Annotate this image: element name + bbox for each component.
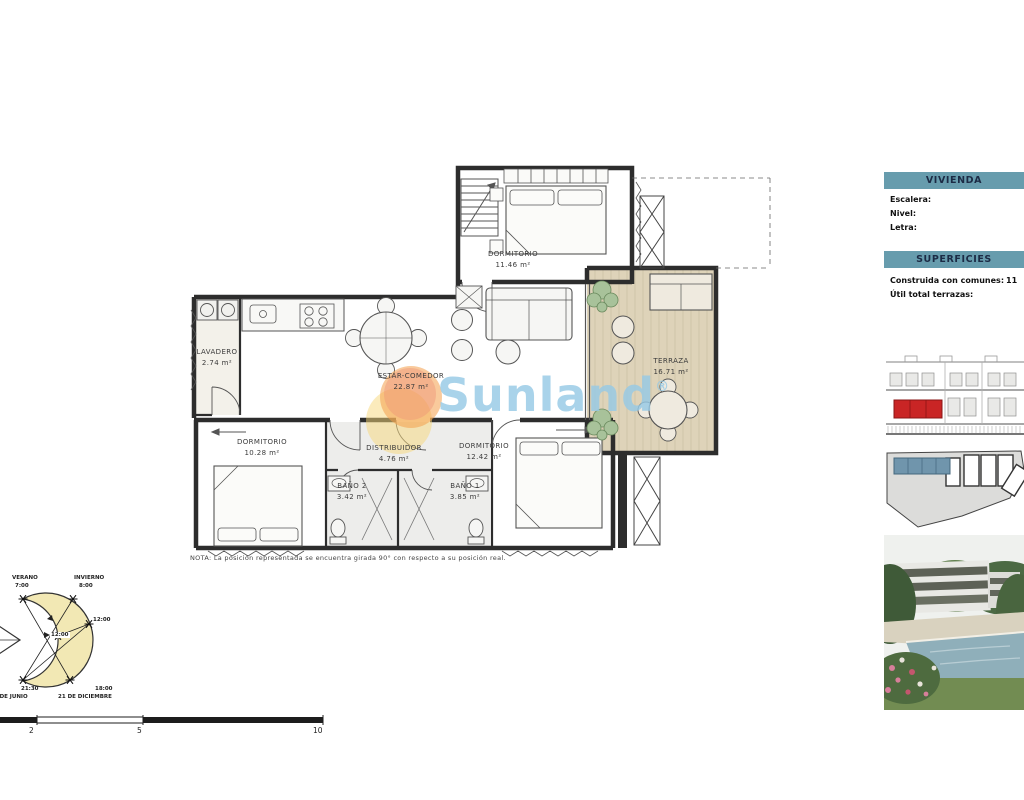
wall-poche	[618, 453, 627, 548]
vivienda-header-label: VIVIENDA	[926, 175, 982, 186]
wardrobe	[504, 169, 608, 183]
room-label-dormitorio-left: DORMITORIO10.28 m²	[237, 437, 287, 458]
scale-tick-10: 10	[313, 726, 323, 735]
scale-tick-5: 5	[137, 726, 142, 735]
siteplan-thumbnail	[887, 451, 1024, 527]
stairs	[461, 179, 498, 236]
vivienda-header-bar: VIVIENDA	[884, 172, 1024, 189]
sun-sunset-summer: 21:30	[21, 686, 39, 692]
sun-date-summer: 21 DE JUNIO	[0, 694, 28, 700]
sun-verano-label: VERANO	[12, 575, 38, 581]
projection-dashes	[632, 178, 770, 268]
superficies-header-bar: SUPERFICIES	[884, 251, 1024, 268]
floorplan-sheet: Sunland® DORMITORIO11.46 m² LAVADERO2.74…	[0, 0, 1024, 800]
north-arrow	[0, 624, 20, 656]
room-label-estar-comedor: ESTAR-COMEDOR22.87 m²	[378, 371, 444, 392]
sun-sunset-winter: 18:00	[95, 686, 113, 692]
superficie-construida-label: Construida con comunes:	[890, 276, 1004, 285]
scale-tick-2: 2	[29, 726, 34, 735]
room-label-dormitorio-top: DORMITORIO11.46 m²	[488, 249, 538, 270]
highlighted-unit-blue	[894, 458, 950, 474]
sun-invierno-time: 8:00	[79, 583, 93, 589]
kitchen	[242, 299, 344, 331]
superficie-terrazas-label: Útil total terrazas:	[890, 290, 973, 299]
sun-date-winter: 21 DE DICIEMBRE	[58, 694, 112, 700]
sofa	[452, 286, 573, 364]
room-label-bano2: BAÑO 23.42 m²	[337, 481, 367, 502]
bed-top	[490, 186, 606, 254]
bed-bottom-left	[214, 466, 302, 546]
superficie-construida-value: 11	[1006, 276, 1017, 285]
rotation-note: NOTA: La posición representada se encuen…	[190, 554, 506, 562]
sun-invierno-label: INVIERNO	[74, 575, 104, 581]
scale-bar	[0, 715, 323, 725]
room-label-distribuidor: DISTRIBUIDOR4.76 m²	[366, 443, 422, 464]
field-letra: Letra:	[890, 223, 917, 232]
bed-bottom-right	[516, 438, 602, 528]
room-label-lavadero: LAVADERO2.74 m²	[197, 347, 238, 368]
photo-thumbnail	[864, 535, 1024, 710]
sun-noon-right: 12:00	[93, 617, 111, 623]
field-nivel: Nivel:	[890, 209, 916, 218]
sun-noon-center: 12:00	[50, 632, 70, 638]
field-escalera: Escalera:	[890, 195, 931, 204]
room-label-terraza: TERRAZA16.71 m²	[653, 356, 688, 377]
sun-verano-time: 7:00	[15, 583, 29, 589]
watermark-logo: Sunland®	[437, 372, 670, 418]
superficies-header-label: SUPERFICIES	[916, 254, 992, 265]
sun-path-diagram	[0, 593, 94, 687]
room-label-dormitorio-right: DORMITORIO12.42 m²	[459, 441, 509, 462]
highlighted-unit-red	[894, 400, 942, 418]
elevation-thumbnail	[886, 356, 1024, 434]
room-label-bano1: BAÑO 13.85 m²	[450, 481, 480, 502]
registered-mark: ®	[655, 379, 670, 395]
